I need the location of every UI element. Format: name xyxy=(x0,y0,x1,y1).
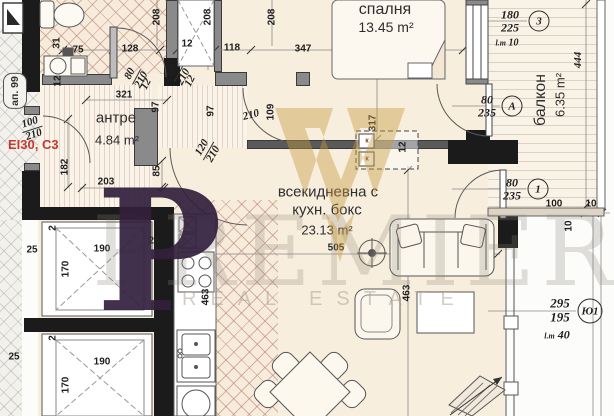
windowY-id-text: Ю1 xyxy=(581,305,598,317)
bedroom-window xyxy=(466,0,488,84)
window3-id-text: 3 xyxy=(536,15,542,27)
toilet xyxy=(40,1,84,28)
armchair xyxy=(355,289,400,339)
door1-id: 1 xyxy=(528,179,549,200)
washing-machine xyxy=(177,386,215,416)
dim-208: 208 xyxy=(152,9,163,26)
dim-elev-170: 170 xyxy=(61,377,72,394)
windowY-size: 295 195 xyxy=(550,296,570,323)
doorA-id-text: А xyxy=(508,100,515,112)
dim-bath-width: 128 xyxy=(122,44,139,55)
dim-elev-190: 190 xyxy=(94,244,111,255)
electrical-box xyxy=(3,3,23,33)
sofa-pillow xyxy=(460,224,486,248)
dim-75: 75 xyxy=(72,45,83,56)
living-area: 23.13 m² xyxy=(301,223,352,238)
kitchen-sink xyxy=(177,330,215,382)
dim-elev-25: 25 xyxy=(148,236,159,247)
dim-10: 10 xyxy=(564,220,575,231)
bedside-bench xyxy=(408,63,432,78)
dim-85: 85 xyxy=(152,165,163,176)
door-height: 235 xyxy=(478,106,496,119)
apartment-number: ап. 99 xyxy=(3,73,27,109)
balcony-label: балкон xyxy=(532,74,550,126)
dim-12: 12 xyxy=(53,75,64,86)
dim-97: 97 xyxy=(151,101,162,112)
window3-sill: l.m 10 xyxy=(496,38,519,49)
window-height: 195 xyxy=(550,310,570,324)
sill-value: 10 xyxy=(508,38,518,49)
dim-living-width: 505 xyxy=(328,243,345,254)
dim-97: 97 xyxy=(206,105,217,116)
dining-set xyxy=(251,349,369,416)
doorA-id: А xyxy=(502,96,523,117)
dim-bedroom-width: 347 xyxy=(295,44,312,55)
dim-31: 31 xyxy=(52,37,63,48)
stove xyxy=(178,252,214,292)
dim-elev-25: 25 xyxy=(8,352,19,363)
window3-size: 180 225 xyxy=(501,8,519,33)
bath-door-leaf xyxy=(110,27,117,78)
bedroom-area: 13.45 m² xyxy=(358,19,413,35)
windowY-id: Ю1 xyxy=(578,299,603,324)
dim-wall-12: 12 xyxy=(181,39,192,50)
dim-elev-25: 25 xyxy=(26,245,37,256)
sill-prefix: l.m xyxy=(544,332,554,341)
dim-hall-length: 182 xyxy=(60,159,71,176)
wardrobe-mark: к xyxy=(365,156,369,163)
door-height: 235 xyxy=(503,189,521,202)
section-arrow xyxy=(449,376,505,416)
window3-id: 3 xyxy=(529,11,550,32)
fire-door-rating: EI30, C3 xyxy=(8,137,59,152)
dim-463: 463 xyxy=(201,289,212,306)
floor-plan: 128 12 118 347 208 208 208 321 203 182 9… xyxy=(0,0,614,416)
doorA-size: 80 235 xyxy=(478,93,496,118)
window-width: 180 xyxy=(501,8,519,21)
dim-10: 10 xyxy=(585,199,596,210)
sofa xyxy=(390,219,494,276)
dim-2: 2 xyxy=(48,335,59,341)
dim-bedroom-depth: 317 xyxy=(368,115,379,132)
living-label-line1: всекидневна с xyxy=(278,184,378,201)
windowY-sill: l.m 40 xyxy=(544,328,569,343)
door-width: 80 xyxy=(478,93,496,106)
hallway-area: 4.84 m² xyxy=(95,133,139,148)
window-width: 295 xyxy=(550,296,570,310)
living-label-line2: кухн. бокс xyxy=(292,202,362,219)
hallway-label: антре xyxy=(96,110,136,127)
dim-hall-bottom: 203 xyxy=(98,177,115,188)
door1-size: 80 235 xyxy=(503,176,521,201)
door1-id-text: 1 xyxy=(535,183,541,195)
bedroom-label: спалня xyxy=(359,1,411,19)
sill-value: 40 xyxy=(558,328,570,342)
elevator-shaft-1 xyxy=(42,222,152,316)
elevator-shaft-2 xyxy=(42,334,152,416)
dim-2: 2 xyxy=(48,225,59,231)
dim-elev-190: 190 xyxy=(94,357,111,368)
ceiling-lamp-symbol xyxy=(357,238,387,268)
wardrobe-mark: к xyxy=(365,138,369,145)
sill-prefix: l.m xyxy=(496,39,506,48)
dim-balcony-length: 444 xyxy=(572,52,584,69)
window-height: 225 xyxy=(501,21,519,34)
coffee-table xyxy=(417,292,474,333)
south-window-band xyxy=(504,248,518,416)
door-width: 80 xyxy=(503,176,521,189)
balcony-area: 6.35 m² xyxy=(553,73,568,117)
dim-100: 100 xyxy=(546,199,563,210)
dim-hall-width: 321 xyxy=(116,90,133,101)
dim-109: 109 xyxy=(266,104,277,121)
dim-12: 12 xyxy=(398,141,409,152)
dim-208: 208 xyxy=(267,9,278,26)
dim-elev-170: 170 xyxy=(61,261,72,278)
dim-208: 208 xyxy=(203,9,214,26)
dim-118: 118 xyxy=(224,43,240,54)
dim-463: 463 xyxy=(402,285,413,302)
